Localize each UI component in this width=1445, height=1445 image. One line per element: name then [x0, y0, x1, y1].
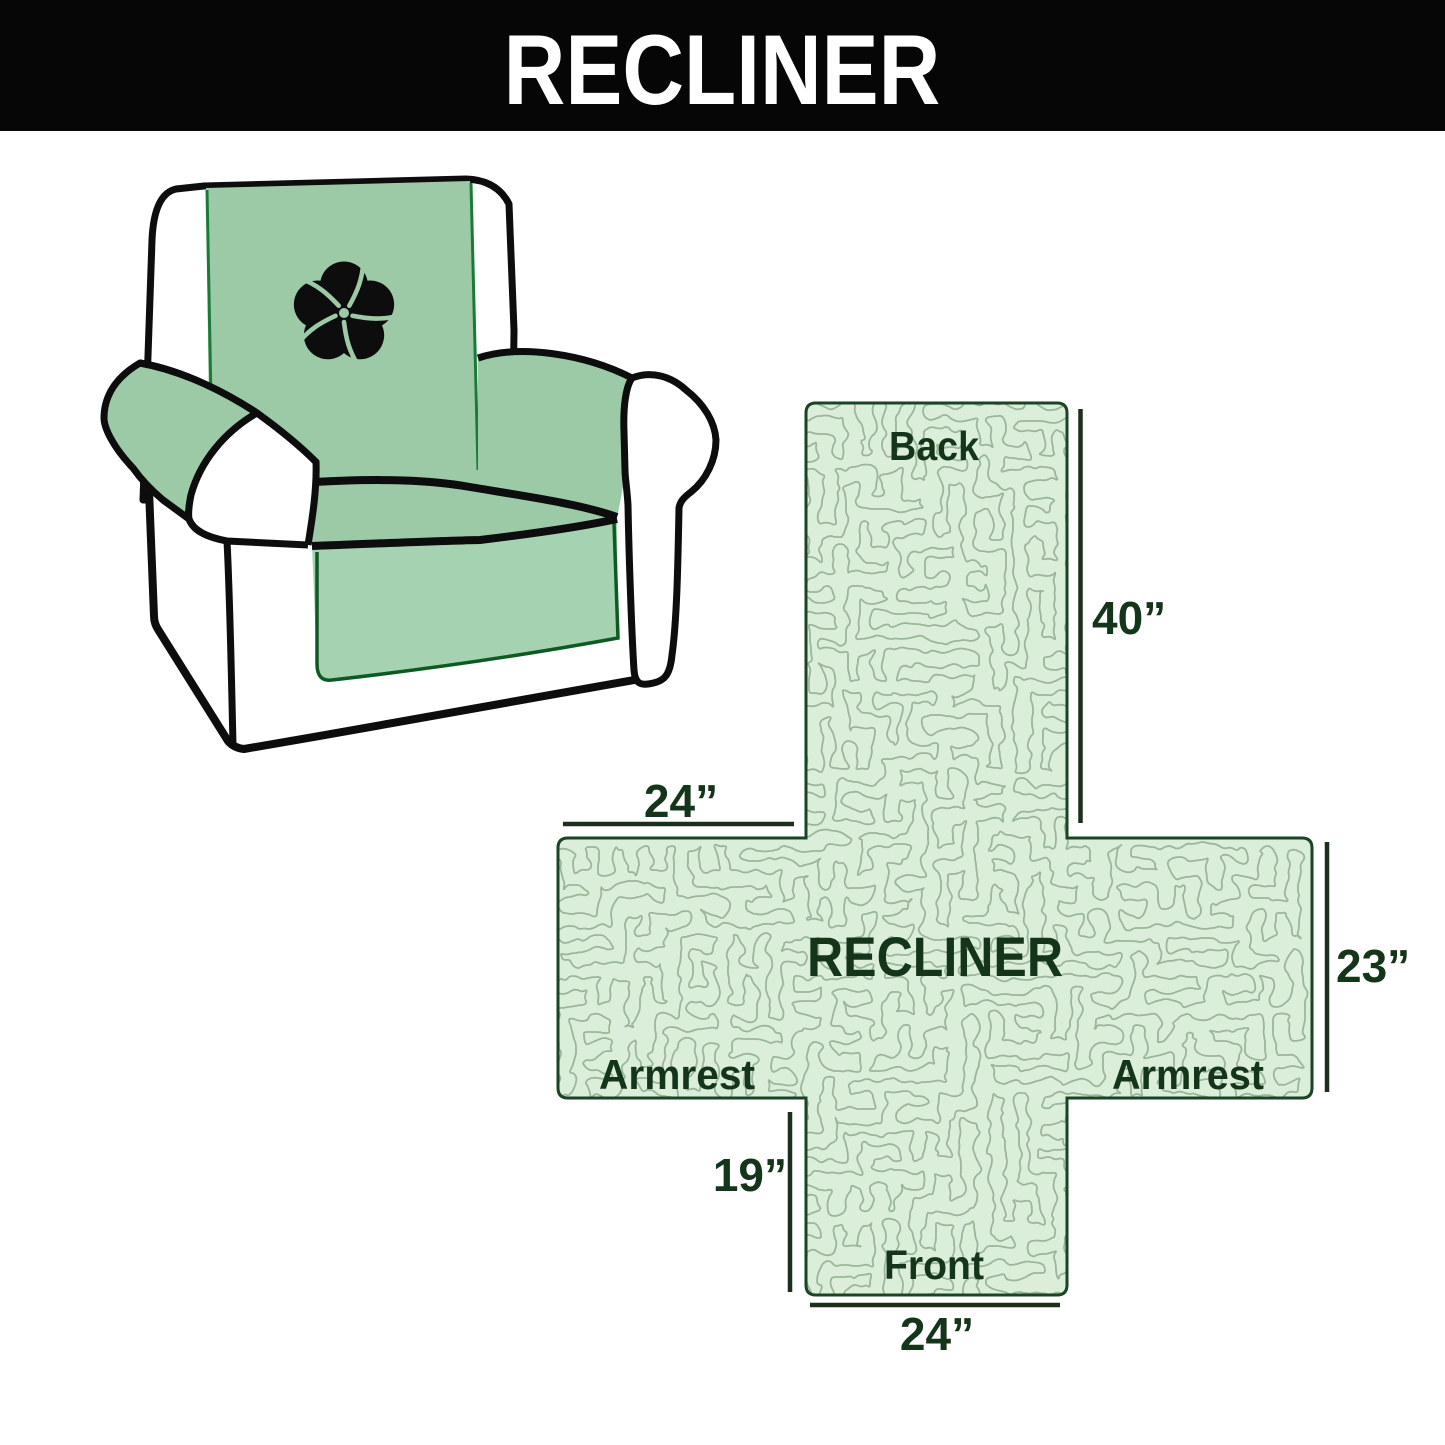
- svg-text:Back: Back: [889, 423, 979, 469]
- svg-text:23”: 23”: [1336, 940, 1410, 992]
- svg-text:Armrest: Armrest: [1112, 1051, 1264, 1098]
- svg-text:Armrest: Armrest: [599, 1051, 755, 1098]
- svg-text:24”: 24”: [900, 1308, 974, 1360]
- svg-text:24”: 24”: [644, 775, 718, 827]
- svg-text:40”: 40”: [1092, 592, 1166, 644]
- svg-text:RECLINER: RECLINER: [807, 925, 1063, 988]
- svg-text:19”: 19”: [713, 1149, 787, 1201]
- svg-text:Front: Front: [884, 1242, 984, 1288]
